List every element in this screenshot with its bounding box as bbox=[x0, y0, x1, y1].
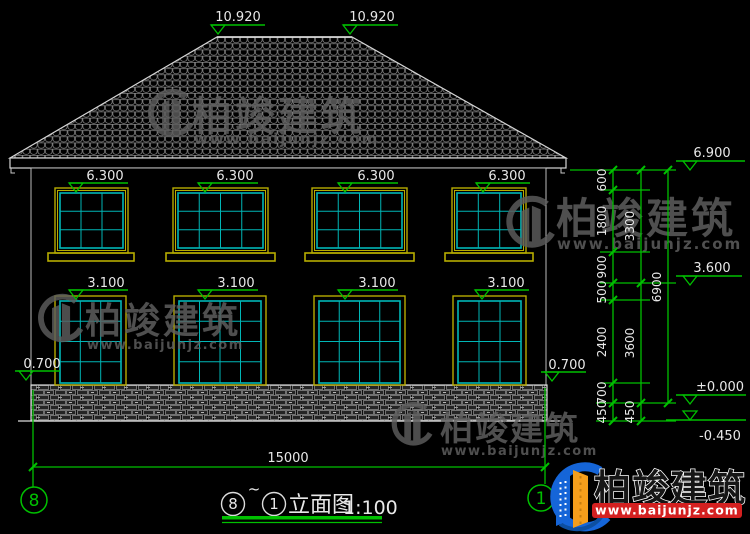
elevation-value: 3.100 bbox=[358, 276, 395, 291]
elevation-value: 3.100 bbox=[217, 276, 254, 291]
right-dimension-chains: 600 1800 900 500 2400 700 450 3300 3600 … bbox=[570, 146, 746, 444]
elevation-value: 3.100 bbox=[487, 276, 524, 291]
grid-label: 8 bbox=[29, 491, 40, 511]
upper-window-2 bbox=[166, 188, 275, 261]
watermark-brand: 柏竣建筑 bbox=[85, 301, 241, 342]
dim-subtotal: 3300 bbox=[623, 211, 637, 242]
eave-elevation-marker: 6.900 bbox=[676, 146, 745, 170]
second-floor-elevation-marker: 3.600 bbox=[676, 261, 742, 285]
lower-window-4 bbox=[453, 296, 526, 385]
corner-logo: 柏竣建筑 www.baijunjz.com bbox=[555, 467, 746, 529]
title-underline-thick bbox=[222, 516, 382, 520]
elevation-value: 6.300 bbox=[357, 169, 394, 184]
ground-elevation-marker: ±0.000 bbox=[676, 380, 746, 404]
elevation-value: 6.300 bbox=[216, 169, 253, 184]
upper-window-1 bbox=[48, 188, 134, 261]
dim-segment: 900 bbox=[595, 256, 609, 279]
dim-segment: 500 bbox=[595, 281, 609, 304]
grid-bubble-left: 8 bbox=[21, 487, 47, 513]
watermark-brand: 柏竣建筑 bbox=[440, 409, 580, 448]
title-scale: 1:100 bbox=[343, 497, 398, 519]
title-grid-start: 8 bbox=[228, 495, 238, 513]
watermark-url: www.baijunjz.com bbox=[557, 235, 742, 253]
watermark-url: www.baijunjz.com bbox=[87, 338, 244, 353]
plinth-elevation-right: 0.700 bbox=[541, 358, 586, 381]
elevation-value: 3.100 bbox=[87, 276, 124, 291]
elevation-value: 10.920 bbox=[349, 10, 395, 25]
elevation-value: 10.920 bbox=[215, 10, 261, 25]
dim-segment: 2400 bbox=[595, 327, 609, 358]
elevation-value: 6.300 bbox=[488, 169, 525, 184]
elevation-value: 6.900 bbox=[693, 146, 730, 161]
cad-elevation-drawing: 柏竣建筑 www.baijunjz.com 柏竣建筑 www.baijunjz.… bbox=[0, 0, 750, 534]
lower-window-3 bbox=[314, 296, 405, 385]
drawing-title: 8 ~ 1 立面图 1:100 bbox=[222, 480, 398, 523]
watermark-url: www.baijunjz.com bbox=[194, 130, 379, 148]
elevation-value: 0.700 bbox=[23, 357, 60, 372]
dim-segment: 450 bbox=[595, 401, 609, 424]
ridge-elevation-left: 10.920 bbox=[211, 10, 265, 34]
elevation-value: 3.600 bbox=[693, 261, 730, 276]
corner-logo-url: www.baijunjz.com bbox=[595, 503, 739, 518]
dim-subtotal: 3600 bbox=[623, 328, 637, 359]
eave-fascia bbox=[10, 158, 566, 168]
ridge-elevation-right: 10.920 bbox=[343, 10, 398, 34]
grid-label: 1 bbox=[536, 489, 547, 509]
drawing-canvas: 柏竣建筑 www.baijunjz.com 柏竣建筑 www.baijunjz.… bbox=[0, 0, 750, 534]
total-width-dimension: 15000 bbox=[267, 451, 308, 466]
title-separator: ~ bbox=[248, 480, 261, 498]
elevation-value: 6.300 bbox=[86, 169, 123, 184]
foundation-elevation-marker: -0.450 bbox=[666, 411, 746, 444]
watermark-url: www.baijunjz.com bbox=[441, 444, 598, 459]
dim-total-height: 6900 bbox=[650, 272, 664, 303]
elevation-value: ±0.000 bbox=[696, 380, 744, 395]
title-grid-end: 1 bbox=[269, 495, 279, 513]
dim-subtotal: 450 bbox=[623, 401, 637, 424]
elevation-value: -0.450 bbox=[699, 429, 741, 444]
elevation-value: 0.700 bbox=[548, 358, 585, 373]
dim-segment: 1800 bbox=[595, 206, 609, 237]
dim-segment: 600 bbox=[595, 169, 609, 192]
upper-window-3 bbox=[305, 188, 414, 261]
grid-bubble-right: 1 bbox=[528, 485, 554, 511]
